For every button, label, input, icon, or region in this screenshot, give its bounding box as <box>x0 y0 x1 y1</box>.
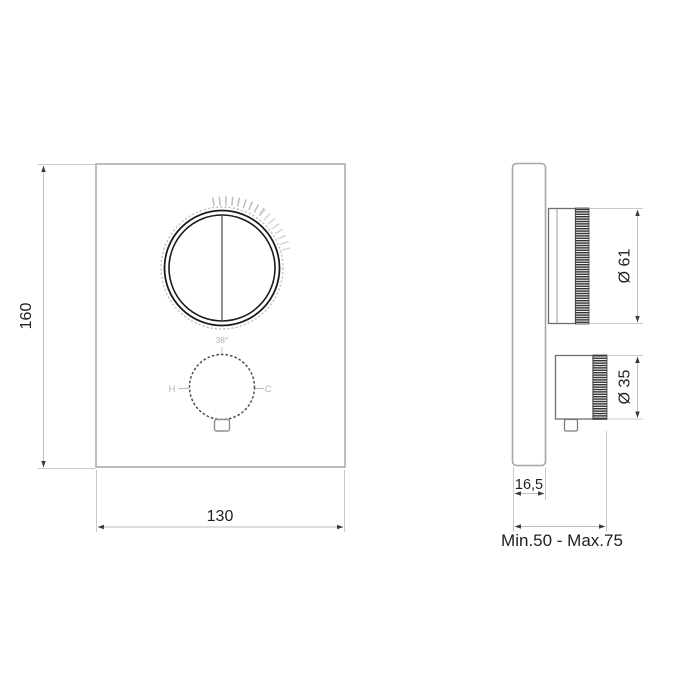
cold-label: C <box>265 384 272 395</box>
large-knob-diameter-label: Ø 61 <box>617 249 634 284</box>
small-knob-diameter-label: Ø 35 <box>617 370 634 405</box>
side-view: Ø 61 Ø 35 16,5 Min.50 - Max.75 <box>501 164 643 551</box>
small-knob-side <box>556 355 608 431</box>
plate-depth-label: 16,5 <box>515 477 543 493</box>
dim-plate-depth: 16,5 <box>514 467 546 532</box>
large-knob-knurl <box>576 208 590 324</box>
mixer-valve-drawing: 38° H C 160 130 <box>0 0 700 700</box>
hot-label: H <box>169 384 176 395</box>
height-dim-label: 160 <box>18 303 35 330</box>
dim-small-knob-diameter: Ø 35 <box>608 356 643 420</box>
small-knob-knurl <box>593 355 607 420</box>
installation-depth-label: Min.50 - Max.75 <box>501 531 623 550</box>
large-knob-body <box>549 209 576 324</box>
side-plate-profile <box>513 164 546 466</box>
dim-width-130: 130 <box>97 470 345 532</box>
knob-bottom-tab-front <box>215 420 230 432</box>
thermostat-knob-outline <box>190 355 255 420</box>
temperature-stop-label: 38° <box>216 335 229 345</box>
width-dim-label: 130 <box>207 508 234 525</box>
dim-height-160: 160 <box>18 165 95 469</box>
front-view: 38° H C 160 130 <box>18 164 345 532</box>
dim-large-knob-diameter: Ø 61 <box>590 209 643 324</box>
large-knob-side <box>549 208 590 324</box>
small-knob-body <box>556 356 594 420</box>
technical-drawing-canvas: 38° H C 160 130 <box>0 0 700 700</box>
knob-bottom-tab-side <box>565 420 578 432</box>
